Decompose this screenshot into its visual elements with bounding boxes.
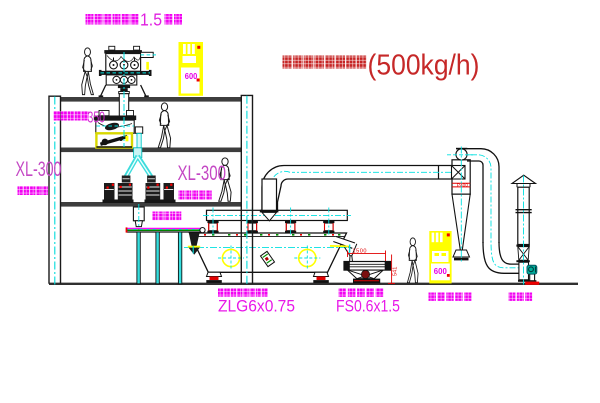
svg-text:350: 350 [88, 110, 106, 127]
svg-text:P400: P400 [457, 183, 469, 189]
svg-text:600: 600 [185, 71, 198, 81]
svg-text:ZLG6x0.75: ZLG6x0.75 [218, 298, 295, 316]
svg-text:541: 541 [393, 267, 399, 276]
svg-text:FS0.6x1.5: FS0.6x1.5 [336, 298, 400, 316]
svg-text:(500kg/h): (500kg/h) [368, 50, 480, 82]
svg-text:1.5: 1.5 [140, 10, 162, 30]
svg-text:XL-300: XL-300 [178, 162, 227, 185]
svg-text:600: 600 [434, 266, 447, 276]
svg-text:XL-300: XL-300 [16, 157, 62, 181]
svg-text:1500: 1500 [353, 248, 367, 254]
